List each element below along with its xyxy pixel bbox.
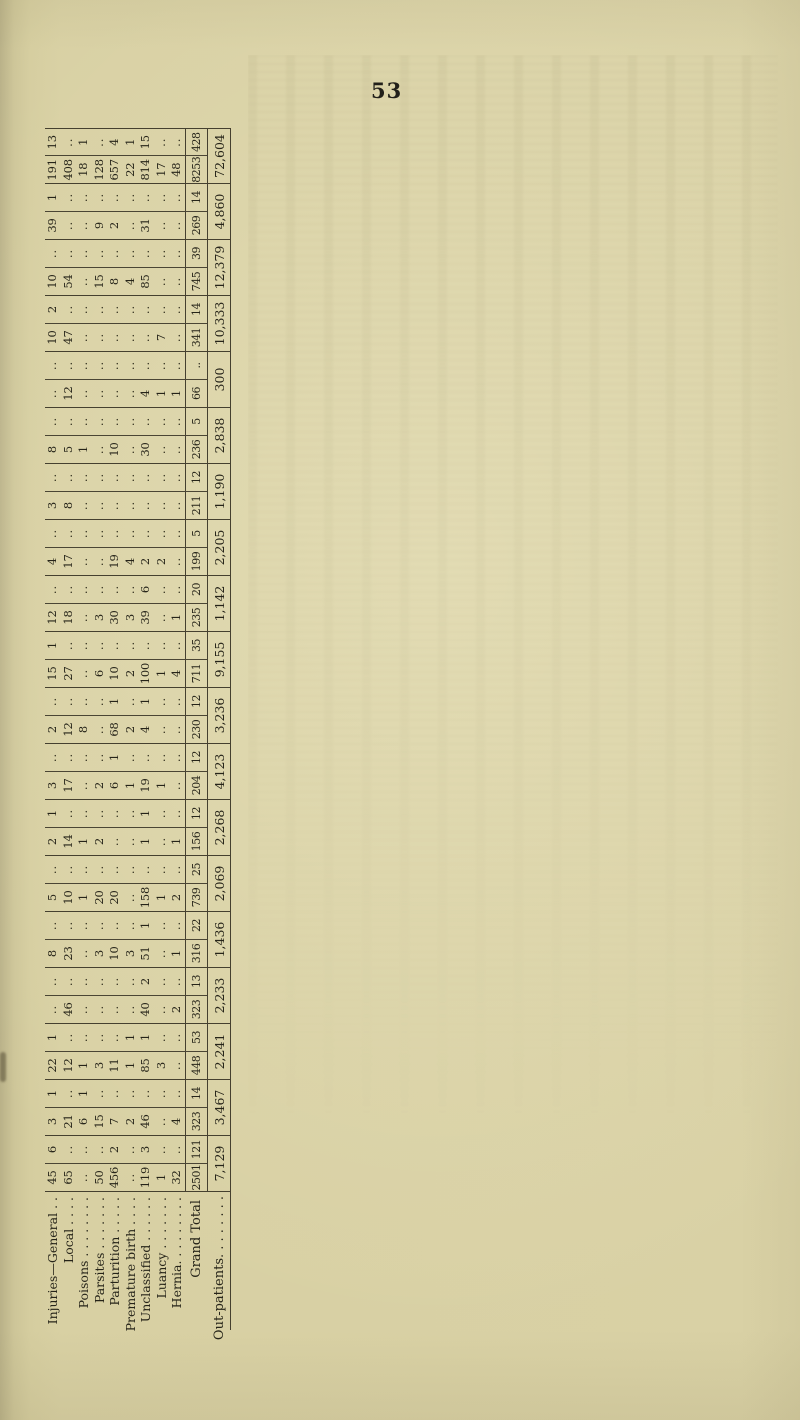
table-cell: 814 [138, 157, 154, 184]
data-column: ..................25 [45, 856, 207, 884]
data-column: ..................5 [45, 520, 207, 548]
data-column: 417....19422..199 [45, 548, 207, 575]
table-cell: 2 [92, 772, 108, 799]
table-cell: .. [169, 520, 185, 547]
table-cell: .. [154, 968, 170, 995]
table-cell: 8 [45, 436, 61, 463]
data-column: 2128..6824....230 [45, 716, 207, 743]
table-cell: .. [169, 968, 185, 995]
table-cell: .. [138, 352, 154, 379]
table-cell: .. [107, 240, 123, 267]
column-pair-values: ..12........41166.................... [45, 352, 207, 407]
row-label-parturition: Parturition . . . . . [107, 1192, 123, 1390]
table-cell: .. [61, 1024, 77, 1051]
table-cell: .. [92, 968, 108, 995]
table-cell: .. [76, 604, 92, 631]
table-cell: 4 [123, 548, 139, 575]
table-cell: 17 [61, 548, 77, 575]
table-cell: .. [76, 996, 92, 1023]
table-cell: 48 [169, 157, 185, 184]
table-cell: .. [154, 212, 170, 239]
table-cell: .. [61, 129, 77, 156]
table-cell: .. [45, 912, 61, 939]
out-patients-cell: 7,129 [207, 1136, 231, 1191]
table-cell: .. [45, 520, 61, 547]
table-cell: .. [138, 184, 154, 211]
table-cell: .. [76, 296, 92, 323]
table-cell: .. [107, 352, 123, 379]
table-cell: 10 [107, 660, 123, 687]
table-cell: .. [92, 184, 108, 211]
reverse-side-showthrough [248, 55, 778, 1145]
table-cell: .. [123, 296, 139, 323]
table-cell: .. [61, 632, 77, 659]
table-cell: 2 [45, 828, 61, 855]
table-cell: .. [123, 184, 139, 211]
table-cell: 100 [138, 660, 154, 687]
table-cell: .. [138, 464, 154, 491]
table-cell: .. [92, 576, 108, 603]
table-cell: .. [45, 576, 61, 603]
table-cell: .. [107, 632, 123, 659]
grand-total-cell: 323 [185, 1108, 207, 1135]
table-cell: .. [123, 856, 139, 883]
table-cell: .. [76, 1164, 92, 1191]
table-cell: .. [45, 352, 61, 379]
out-patients-cell: 1,190 [207, 464, 231, 519]
table-cell: .. [61, 912, 77, 939]
grand-total-cell: 66 [185, 380, 207, 407]
grand-total-label: Grand Total [185, 1192, 207, 1390]
table-cell: 4 [169, 1108, 185, 1135]
table-cell: .. [107, 800, 123, 827]
data-column: 1218..330339..1235 [45, 604, 207, 631]
table-cell: 22 [45, 1052, 61, 1079]
table-cell: .. [123, 968, 139, 995]
table-cell: .. [61, 1136, 77, 1163]
table-cell: 6 [107, 772, 123, 799]
data-column: 1................35 [45, 632, 207, 660]
table-cell: 1 [154, 1164, 170, 1191]
table-cell: .. [123, 828, 139, 855]
table-cell: 456 [107, 1164, 123, 1191]
table-cell: .. [169, 912, 185, 939]
table-cell: .. [76, 660, 92, 687]
data-column: 1527..610210014711 [45, 660, 207, 687]
out-patients-cell: 2,241 [207, 1024, 231, 1079]
table-cell: .. [169, 408, 185, 435]
table-cell: .. [61, 464, 77, 491]
table-cell: 3 [123, 940, 139, 967]
column-pair-values: ..46........40..2323............2....13 [45, 968, 207, 1023]
table-cell: 191 [45, 157, 61, 184]
column-pair-values: 2128..6824....230........1..1....12 [45, 688, 207, 743]
table-cell: .. [154, 296, 170, 323]
table-cell: .. [107, 492, 123, 519]
table-cell: .. [76, 212, 92, 239]
table-cell: .. [76, 968, 92, 995]
table-cell: 15 [45, 660, 61, 687]
rotated-statistics-table: Injuries—General . .Local . . . .Poisons… [45, 128, 231, 1390]
table-cell: .. [123, 912, 139, 939]
table-cell: .. [154, 744, 170, 771]
table-cell: .. [154, 996, 170, 1023]
data-column: 21412....1..1156 [45, 828, 207, 855]
grand-total-cell: 14 [185, 296, 207, 323]
table-cell: .. [169, 324, 185, 351]
data-column: 13..1..4115....428 [45, 129, 207, 157]
table-cell: .. [92, 912, 108, 939]
table-cell: .. [154, 520, 170, 547]
table-cell: .. [154, 492, 170, 519]
data-column: 317..261191..204 [45, 772, 207, 799]
table-cell: 1 [45, 184, 61, 211]
table-cell: .. [76, 464, 92, 491]
row-labels-column: Injuries—General . .Local . . . .Poisons… [45, 1192, 231, 1390]
table-cell: 1 [123, 1024, 139, 1051]
grand-total-cell: 745 [185, 268, 207, 295]
column-pair-values: 317..261191..204........1........12 [45, 744, 207, 799]
table-cell: .. [169, 1052, 185, 1079]
grand-total-cell: 230 [185, 716, 207, 743]
table-cell: 1 [138, 1024, 154, 1051]
table-cell: .. [169, 548, 185, 575]
column-pair: 317..261191..204........1........124,123 [45, 744, 231, 800]
table-cell: .. [92, 632, 108, 659]
data-column: 39....92..31....269 [45, 212, 207, 239]
table-cell: .. [138, 408, 154, 435]
table-cell: 2 [123, 660, 139, 687]
table-cell: .. [45, 240, 61, 267]
table-cell: 10 [107, 436, 123, 463]
table-cell: .. [76, 520, 92, 547]
table-cell: .. [92, 1024, 108, 1051]
data-column: 1........11....53 [45, 1024, 207, 1052]
table-cell: 1 [154, 380, 170, 407]
table-cell: 1 [76, 1052, 92, 1079]
table-cell: 12 [61, 1052, 77, 1079]
grand-total-cell: 428 [185, 129, 207, 156]
table-cell: .. [107, 856, 123, 883]
table-cell: 12 [61, 716, 77, 743]
grand-total-cell: 2501 [185, 1164, 207, 1191]
table-cell: .. [61, 1080, 77, 1107]
table-cell: .. [138, 492, 154, 519]
grand-total-cell: 12 [185, 800, 207, 827]
out-patients-cell: 4,860 [207, 184, 231, 239]
table-cell: 21 [61, 1108, 77, 1135]
table-cell: 5 [61, 436, 77, 463]
table-cell: .. [169, 716, 185, 743]
table-cell: 2 [123, 1108, 139, 1135]
table-cell: 3 [92, 1052, 108, 1079]
table-cell: 1 [154, 772, 170, 799]
table-cell: .. [154, 800, 170, 827]
grand-total-cell: 13 [185, 968, 207, 995]
table-cell: .. [123, 1164, 139, 1191]
table-cell: 45 [45, 1164, 61, 1191]
table-cell: 1 [138, 688, 154, 715]
column-pair: 51012020..15812739..................252,… [45, 856, 231, 912]
grand-total-cell: 12 [185, 688, 207, 715]
table-cell: .. [169, 800, 185, 827]
table-cell: .. [107, 184, 123, 211]
data-column: 221213111853..448 [45, 1052, 207, 1079]
table-cell: .. [45, 856, 61, 883]
scan-edge-smudge [0, 1052, 6, 1082]
data-column: ........1........12 [45, 744, 207, 772]
table-cell: .. [61, 800, 77, 827]
table-cell: .. [169, 744, 185, 771]
table-cell: 50 [92, 1164, 108, 1191]
table-cell: 85 [138, 1052, 154, 1079]
row-label-local: Local . . . . [61, 1192, 77, 1390]
table-cell: 4 [169, 660, 185, 687]
table-cell: 39 [45, 212, 61, 239]
data-column: 1054..158485....745 [45, 268, 207, 295]
out-patients-cell: 10,333 [207, 296, 231, 351]
table-cell: .. [169, 296, 185, 323]
table-cell: 68 [107, 716, 123, 743]
table-cell: .. [138, 520, 154, 547]
out-patients-cell: 300 [207, 352, 231, 407]
table-cell: 1 [107, 688, 123, 715]
table-cell: .. [61, 212, 77, 239]
table-cell: 46 [61, 996, 77, 1023]
row-label-premature-birth: Premature birth . . . . [123, 1192, 139, 1390]
table-cell: .. [61, 520, 77, 547]
table-cell: .. [169, 436, 185, 463]
data-column: ........1..1....12 [45, 688, 207, 716]
column-pair: 1047..........7..3412................141… [45, 296, 231, 352]
table-cell: 2 [169, 884, 185, 911]
table-cell: 2 [154, 548, 170, 575]
column-pair-values: 1527..6102100147111................35 [45, 632, 207, 687]
table-cell: .. [123, 884, 139, 911]
table-cell: .. [154, 576, 170, 603]
table-cell: 7 [154, 324, 170, 351]
out-patients-cell: 2,268 [207, 800, 231, 855]
table-cell: .. [107, 968, 123, 995]
table-cell: .. [107, 296, 123, 323]
table-cell: .. [154, 912, 170, 939]
data-column: ............6....20 [45, 576, 207, 604]
table-cell: 8 [76, 716, 92, 743]
column-pair: 3216157246..43231..1............143,467 [45, 1080, 231, 1136]
table-cell: 1 [45, 1080, 61, 1107]
row-label-injuries-general: Injuries—General . . [45, 1192, 61, 1390]
data-column: 3216157246..4323 [45, 1108, 207, 1135]
out-patients-cell: 2,838 [207, 408, 231, 463]
table-cell: 30 [107, 604, 123, 631]
table-cell: .. [123, 464, 139, 491]
table-cell: 31 [138, 212, 154, 239]
table-cell: .. [76, 380, 92, 407]
table-cell: .. [169, 688, 185, 715]
table-cell: .. [45, 464, 61, 491]
table-cell: 1 [76, 884, 92, 911]
table-cell: .. [61, 352, 77, 379]
table-cell: .. [92, 129, 108, 156]
grand-total-cell: 14 [185, 184, 207, 211]
table-cell: .. [92, 688, 108, 715]
data-column: 6......2..3....121 [45, 1136, 207, 1164]
data-column: 1................14 [45, 184, 207, 212]
table-cell: .. [76, 856, 92, 883]
column-pair-values: 851..10..30....236..................5 [45, 408, 207, 463]
table-cell: 3 [154, 1052, 170, 1079]
table-cell: 2 [169, 996, 185, 1023]
table-cell: 1 [138, 800, 154, 827]
table-cell: 27 [61, 660, 77, 687]
table-cell: 408 [61, 157, 77, 184]
table-cell: .. [123, 520, 139, 547]
grand-total-cell: 323 [185, 996, 207, 1023]
table-cell: .. [61, 296, 77, 323]
column-pair: 1218..330339..1235............6....201,1… [45, 576, 231, 632]
grand-total-cell: 739 [185, 884, 207, 911]
out-patients-cell: 72,604 [207, 129, 231, 183]
table-cell: 39 [138, 604, 154, 631]
data-column: ..46........40..2323 [45, 996, 207, 1023]
grand-total-cell: 121 [185, 1136, 207, 1163]
data-column: ..................39 [45, 240, 207, 268]
table-cell: .. [92, 436, 108, 463]
column-pair: 851..10..30....236..................52,8… [45, 408, 231, 464]
table-cell: .. [76, 576, 92, 603]
column-pair-values: 1218..330339..1235............6....20 [45, 576, 207, 631]
table-cell: 8 [107, 268, 123, 295]
row-label-luancy: Luancy . . . . . . . [154, 1192, 170, 1390]
table-cell: .. [138, 744, 154, 771]
table-cell: .. [107, 996, 123, 1023]
table-cell: .. [154, 828, 170, 855]
table-cell: 3 [45, 772, 61, 799]
table-cell: .. [123, 212, 139, 239]
table-cell: 3 [138, 1136, 154, 1163]
table-cell: .. [123, 324, 139, 351]
table-cell: 10 [45, 268, 61, 295]
table-cell: 15 [92, 1108, 108, 1135]
table-cell: 10 [61, 884, 77, 911]
table-cell: 15 [92, 268, 108, 295]
table-cell: .. [107, 324, 123, 351]
table-cell: .. [107, 380, 123, 407]
table-cell: .. [76, 352, 92, 379]
table-cell: .. [45, 380, 61, 407]
table-cell: .. [169, 856, 185, 883]
table-cell: 51 [138, 940, 154, 967]
table-cell: .. [169, 1080, 185, 1107]
grand-total-cell: 269 [185, 212, 207, 239]
table-cell: 30 [138, 436, 154, 463]
table-cell: .. [154, 604, 170, 631]
table-cell: .. [61, 240, 77, 267]
table-cell: 20 [92, 884, 108, 911]
table-cell: 5 [45, 884, 61, 911]
table-cell: .. [61, 408, 77, 435]
data-column: 851..10..30....236 [45, 436, 207, 463]
table-cell: 17 [154, 157, 170, 184]
table-cell: .. [169, 772, 185, 799]
table-cell: .. [92, 744, 108, 771]
table-cell: .. [123, 240, 139, 267]
column-pair: ..46........40..2323............2....132… [45, 968, 231, 1024]
grand-total-cell: .. [185, 352, 207, 379]
table-cell: 3 [92, 940, 108, 967]
grand-total-cell: 14 [185, 1080, 207, 1107]
table-cell: 6 [138, 576, 154, 603]
table-cell: 657 [107, 157, 123, 184]
table-cell: .. [123, 436, 139, 463]
table-cell: 4 [45, 548, 61, 575]
grand-total-cell: 8253 [185, 157, 207, 184]
column-pair-values: 1054..158485....745..................39 [45, 240, 207, 295]
table-cell: 23 [61, 940, 77, 967]
table-cell: .. [154, 352, 170, 379]
grand-total-cell: 53 [185, 1024, 207, 1051]
row-label-poisons: Poisons . . . . . . . . [76, 1192, 92, 1390]
table-cell: .. [107, 576, 123, 603]
table-cell: .. [92, 520, 108, 547]
table-cell: 3 [92, 604, 108, 631]
table-cell: 19 [138, 772, 154, 799]
out-patients-label: Out-patients. . . . . . . . [207, 1192, 231, 1390]
table-cell: .. [154, 464, 170, 491]
table-cell: .. [107, 408, 123, 435]
table-cell: 3 [45, 1108, 61, 1135]
table-cell: .. [92, 1080, 108, 1107]
table-cell: .. [92, 716, 108, 743]
data-column: ............1....22 [45, 912, 207, 940]
column-pair-values: 21412....1..11561..........1....12 [45, 800, 207, 855]
table-cell: .. [107, 520, 123, 547]
table-cell: .. [92, 1136, 108, 1163]
column-pair: 4565..50456..11913225016......2..3....12… [45, 1136, 231, 1192]
table-cell: .. [123, 352, 139, 379]
table-cell: 1 [169, 380, 185, 407]
table-cell: 1 [123, 772, 139, 799]
table-cell: .. [123, 492, 139, 519]
table-cell: .. [61, 856, 77, 883]
table-cell: .. [61, 184, 77, 211]
table-cell: .. [45, 996, 61, 1023]
table-cell: 1 [45, 800, 61, 827]
out-patients-cell: 4,123 [207, 744, 231, 799]
table-cell: .. [45, 744, 61, 771]
table-cell: .. [154, 184, 170, 211]
out-patients-cell: 3,236 [207, 688, 231, 743]
table-cell: .. [154, 1080, 170, 1107]
table-cell: .. [169, 464, 185, 491]
table-cell: .. [138, 324, 154, 351]
table-cell: .. [138, 856, 154, 883]
grand-total-cell: 25 [185, 856, 207, 883]
table-cell: .. [154, 716, 170, 743]
column-pair: 1527..6102100147111................359,1… [45, 632, 231, 688]
table-cell: 1 [76, 436, 92, 463]
table-cell: 13 [45, 129, 61, 156]
grand-total-cell: 711 [185, 660, 207, 687]
table-cell: 1 [169, 604, 185, 631]
table-cell: .. [92, 996, 108, 1023]
table-cell: .. [92, 380, 108, 407]
table-cell: .. [123, 996, 139, 1023]
table-cell: .. [61, 744, 77, 771]
table-cell: .. [76, 184, 92, 211]
grand-total-cell: 199 [185, 548, 207, 575]
row-label-hernia: Hernia. . . . . . . . . [169, 1192, 185, 1390]
